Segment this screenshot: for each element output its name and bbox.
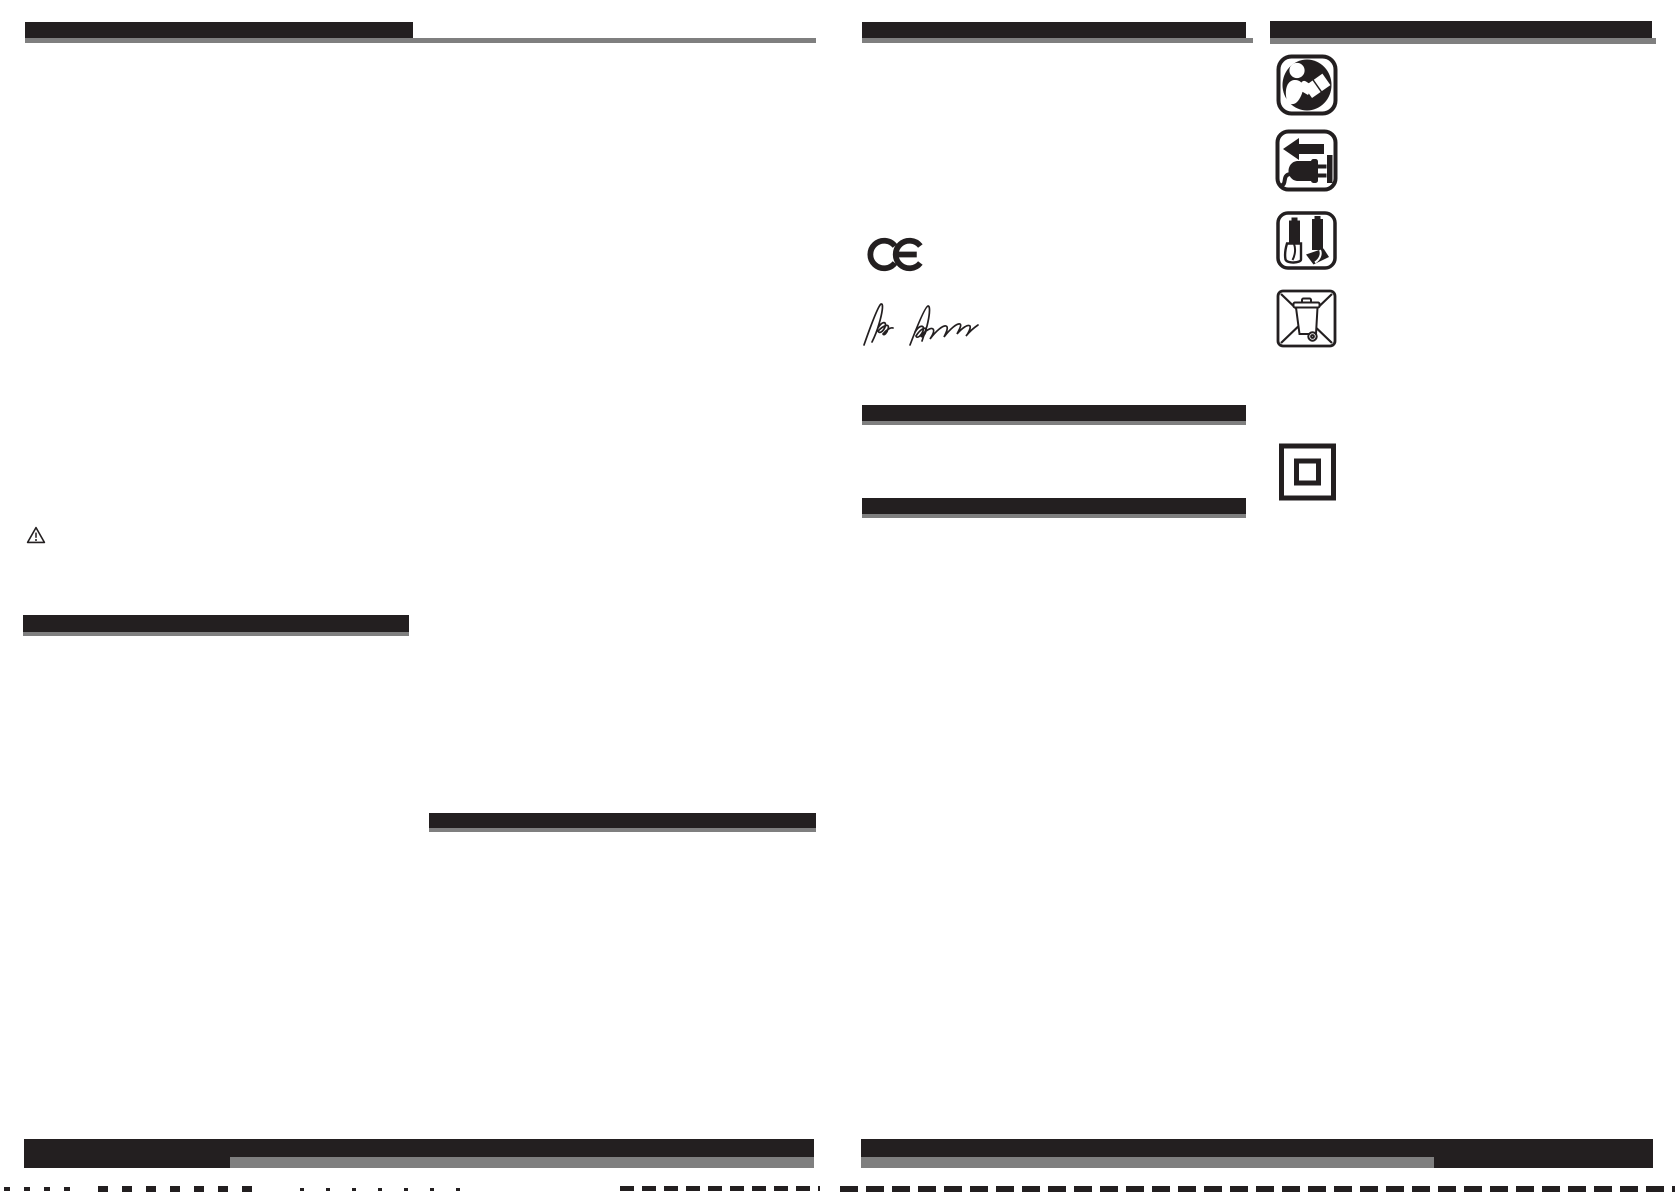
heading-rule-p2-col1-mid2 bbox=[862, 514, 1246, 518]
footer-bar-p2 bbox=[861, 1139, 1653, 1157]
footer-block-p2 bbox=[1434, 1157, 1653, 1168]
footer-bar-p1 bbox=[24, 1139, 814, 1157]
heading-bar-p1-mid bbox=[23, 615, 409, 632]
heading-bar-p1-col2 bbox=[429, 813, 816, 828]
weee-bin-icon bbox=[1276, 289, 1337, 348]
page-edge-print-fragments bbox=[98, 1186, 253, 1192]
heading-bar-p2-col1-top bbox=[862, 22, 1246, 38]
heading-rule-p1-col2 bbox=[429, 828, 816, 832]
heading-rule-p2-col1-top bbox=[862, 38, 1253, 43]
battery-insertion-icon bbox=[1276, 211, 1337, 270]
heading-rule-p1-top bbox=[25, 38, 816, 43]
unplug-icon bbox=[1275, 129, 1338, 192]
heading-rule-p1-mid bbox=[23, 632, 409, 636]
heading-rule-p2-col2-top bbox=[1270, 38, 1656, 44]
manual-spread bbox=[0, 0, 1679, 1192]
heading-bar-p2-col1-mid2 bbox=[862, 498, 1246, 514]
footer-rule-p2 bbox=[861, 1157, 1434, 1168]
ce-mark bbox=[866, 231, 924, 278]
double-insulation-icon bbox=[1277, 442, 1338, 502]
page-edge-print-fragments bbox=[300, 1188, 460, 1191]
footer-rule-p1 bbox=[230, 1157, 814, 1168]
page-edge-print-fragments bbox=[620, 1186, 820, 1191]
signature bbox=[858, 293, 988, 353]
page-edge-print-fragments bbox=[840, 1186, 1675, 1192]
heading-bar-p2-col1-mid1 bbox=[862, 405, 1246, 421]
footer-block-p1 bbox=[24, 1157, 230, 1168]
heading-rule-p2-col1-mid1 bbox=[862, 421, 1246, 425]
heading-bar-p2-col2-top bbox=[1270, 21, 1652, 38]
warning-triangle-icon bbox=[26, 525, 46, 545]
read-manual-icon bbox=[1276, 54, 1338, 116]
heading-bar-p1-top bbox=[25, 22, 413, 38]
page-edge-print-fragments bbox=[4, 1187, 84, 1191]
